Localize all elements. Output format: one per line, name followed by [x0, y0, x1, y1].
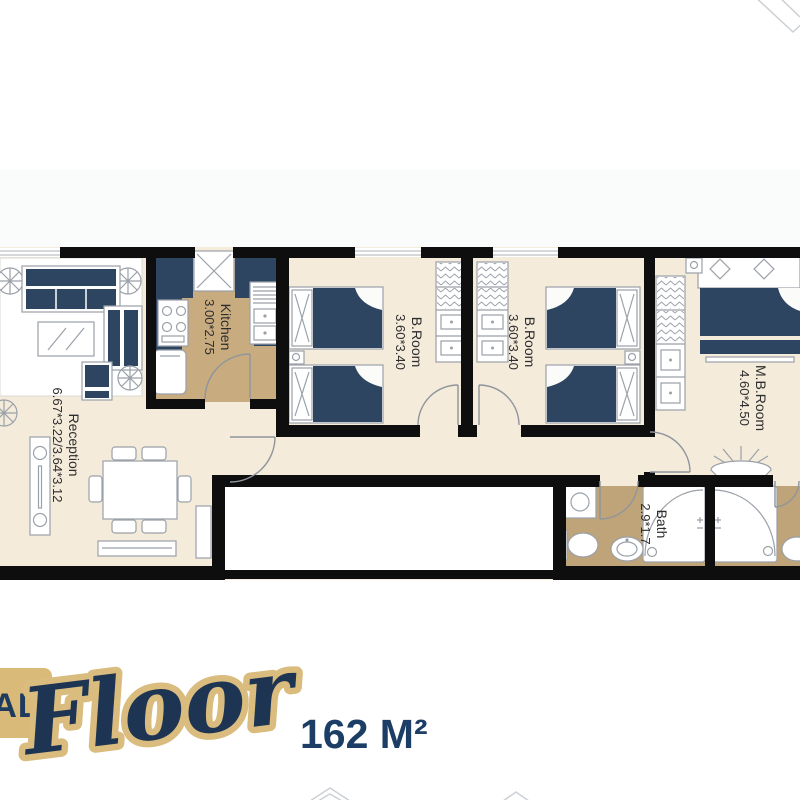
bed-icon — [289, 287, 383, 349]
room-name: B.Room — [409, 317, 425, 368]
exterior-void — [225, 487, 555, 572]
pouf-icon — [82, 362, 112, 400]
wardrobe-icon — [656, 276, 685, 410]
room-name: M.B.Room — [753, 365, 769, 431]
armchair-icon — [104, 306, 142, 370]
nightstand-icon — [686, 258, 702, 273]
nightstand-icon — [289, 351, 304, 364]
sink-unit-icon — [250, 282, 280, 344]
top-band — [0, 170, 800, 247]
area-text: 162 M² — [300, 711, 428, 757]
room-dims: 3.60*3.40 — [393, 314, 408, 370]
window-icon — [493, 248, 558, 257]
room-dims: 3.00*2.75 — [202, 299, 217, 355]
room-dims: 3.60*3.40 — [506, 314, 521, 370]
branding: AL Floor 162 M² — [0, 635, 428, 776]
room-dims: 6.67*3.22/3.64*3.12 — [50, 388, 65, 503]
wardrobe-icon — [477, 262, 508, 362]
room-name: Kitchen — [218, 304, 234, 351]
script-floor-text: Floor — [14, 635, 306, 776]
tv-console-icon — [30, 437, 50, 535]
room-dims: 4.60*4.50 — [737, 370, 752, 426]
bed-icon — [546, 287, 640, 349]
window-icon — [0, 248, 60, 257]
duct-shaft-icon — [194, 251, 234, 291]
floor-plan: Reception 6.67*3.22/3.64*3.12 Kitchen 3.… — [0, 247, 800, 580]
shower-icon — [713, 486, 777, 562]
washing-machine-icon — [564, 486, 596, 518]
bed-icon — [289, 365, 383, 423]
room-name: Reception — [66, 413, 82, 476]
double-bed-icon — [698, 257, 800, 362]
room-dims: 2.9*1.7 — [638, 503, 653, 544]
floor-plan-page: Reception 6.67*3.22/3.64*3.12 Kitchen 3.… — [0, 0, 800, 800]
room-name: Bath — [654, 510, 670, 539]
window-icon — [355, 248, 421, 257]
room-name: B.Room — [522, 317, 538, 368]
floor-plan-canvas: Reception 6.67*3.22/3.64*3.12 Kitchen 3.… — [0, 0, 800, 800]
nightstand-icon — [625, 351, 640, 364]
stove-icon — [158, 300, 188, 346]
console-icon — [196, 506, 211, 558]
coffee-table-icon — [38, 322, 94, 356]
sofa-icon — [22, 266, 120, 312]
bed-icon — [546, 365, 640, 423]
